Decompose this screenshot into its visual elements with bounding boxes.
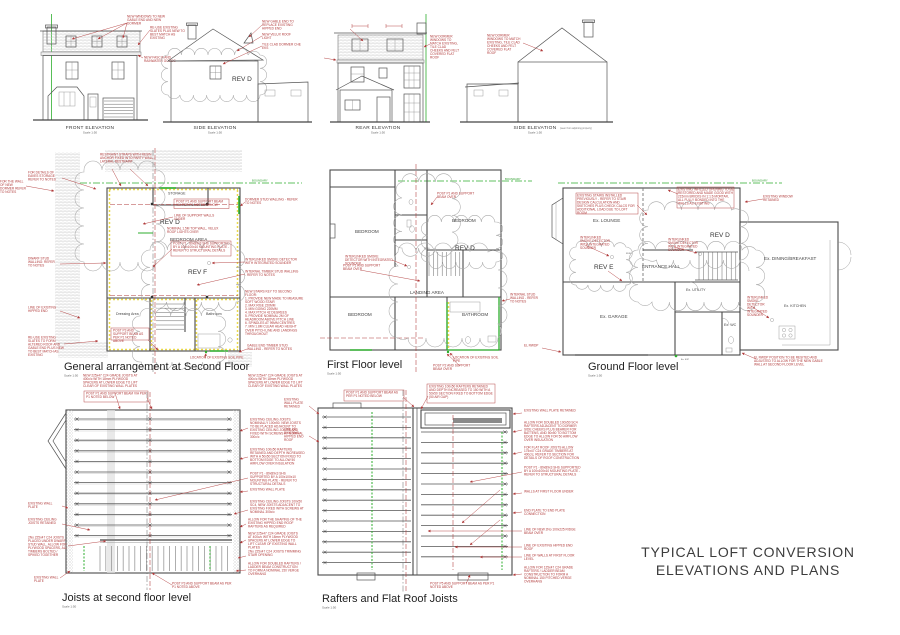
ff-note-intstud: INTERNAL STUD WALLING - REFER TO NOTES [510,293,570,317]
rear-scale: Scale 1:50 [371,131,386,135]
gf-bay-window [552,198,563,244]
front-elevation-scale: Scale 1:50 [83,131,98,135]
sf-note-intstud: INTERNAL TIMBER STUD WALLING - REFER TO … [245,270,355,286]
gf-note-window: EXISTING WINDOW RETAINED [763,195,853,205]
attached-garage [258,82,308,122]
jo-note-l2: EXISTING CEILING JOISTS RETAINED [28,518,96,538]
ff-note-soil: LOCATION OF EXISTING SOIL PIPE [453,356,549,366]
rear-elevation: REAR ELEVATION Scale 1:50 NEW DORMER WIN… [324,14,490,135]
sf-bathroom-label: Bathroom [206,312,222,316]
ff-bed3-label: BEDROOM [348,312,372,317]
sf-bath [198,334,220,348]
sf-note-post3box: POST P3 AND SUPPORT BEAM AS PER P1 NOTED… [113,329,183,353]
sheet-title: TYPICAL LOFT CONVERSION ELEVATIONS AND P… [641,544,855,578]
sf-note-restraint: RESTRAINT STRAPS WITH RESIN ANCHOR FIXED… [100,153,220,185]
rev-d-label: REV D [232,76,252,83]
french-door [838,242,851,255]
ra-title: Rafters and Flat Roof Joists [322,593,458,605]
gf-hall-label: ENTRANCE HALL [642,264,680,269]
gf-dining-label: Ex. DINING/BREAKFAST [764,256,817,261]
front-elevation: FRONT ELEVATION Scale 1:50 NEW WINDOWS T… [33,14,222,135]
garage-door [103,98,134,120]
gf-scale: Scale 1:50 [588,374,603,378]
ra-note-rr9: LINE OF WALLS AT FIRST FLOOR LEVEL [524,554,634,566]
drawing-sheet: FRONT ELEVATION Scale 1:50 NEW WINDOWS T… [0,0,900,635]
ra-note-rr7: LINE OF NEW 2No 100x225 RIDGE BEAM OVER [524,528,634,540]
jo-note-br4: ALLOW FOR DOUBLED RAFTERS / LADDER BEAM … [248,562,356,592]
ra-note-rr10: ALLOW FOR 125x47 C24 GRADE RAFTERS / LAD… [524,566,638,600]
gf-note-smoke3: INTERLINKED SMOKE DETECTOR WITH INTEGRAT… [747,296,799,324]
sf-revf-label: REV F [188,269,207,276]
front-note-2: RE-USE EXISTING SLATES PLUS NEW TO BEST … [150,26,222,44]
gf-garage-label: Ex. GARAGE [600,314,628,319]
gf-title: Ground Floor level [588,361,679,373]
chimney-breast [330,224,335,238]
ground-floor-plan: BOUNDARY Ex. LOUNGE REV D REV E ENTRANCE… [524,179,900,378]
svp-marker [675,355,678,358]
sf-dressing-label: Dressing Area [116,312,139,316]
side-b-scale: Scale 1:50 [528,131,543,135]
ff-revd-label: REV D [455,245,475,252]
sf-note-supwalls: LINE OF SUPPORT WALLS UNDER [174,214,274,224]
soil-pipe-marker [205,351,207,353]
ff-boundary-label: BOUNDARY [505,177,521,181]
ra-note-rr6: END PLATE TO END PLATE CONNECTION [524,509,634,521]
ra-note-left2: LINE OF EXISTING HIPPED END ROOF [284,428,332,456]
sf-note-velux: NOMINAL 1.5M TOP WALL, VELUX ROOF LIGHTS… [167,227,279,243]
jo-title: Joists at second floor level [62,592,191,604]
hob [779,326,795,339]
jo-note-l1: EXISTING WALL PLATE [28,502,96,514]
sf-boundary-label: BOUNDARY [252,179,268,183]
gf-note-rwdp-short: EL RWDP [524,344,560,354]
sf-storage-label: STORAGE [168,192,186,196]
sf-note-hipped: LINE OF EXISTING HIPPED END [28,306,92,322]
ff-landing-label: LANDING AREA [410,290,445,295]
ff-note-post2: POST P2 AND SUPPORT BEAM OVER [433,364,517,380]
sf-note-dwarf: DWARF STUD WALLING: REFER TO NOTES [28,257,92,281]
ff-bed2-label: BEDROOM [452,218,476,223]
ff-bath [450,302,480,312]
sheet-title-line1: TYPICAL LOFT CONVERSION [641,544,855,560]
front-note-3: NEW FASCIA AND RAINWATER GOODS [144,56,208,68]
gf-boundary-label: BOUNDARY [752,179,768,183]
ff-note-post1a: POST P1 AND SUPPORT BEAM OVER [437,192,521,208]
side-b-sublabel: (seen from adjoining property) [560,127,592,130]
rear-note-1: NEW DORMER WINDOWS TO MATCH EXISTING, TI… [430,35,490,75]
gf-note-smoke1: INTERLINKED SMOKE DETECTOR WITH INTEGRAT… [580,236,640,262]
gf-utility-label: Ex. UTILITY [686,288,706,292]
sf-title: General arrangement at Second Floor [64,361,250,373]
french-door [838,257,851,270]
sf-stairs [156,304,184,329]
side-a-scale: Scale 1:50 [208,131,223,135]
ra-note-rr4: POST P1 - 89x89x3 SHS SUPPORTED BY A 100… [524,466,642,492]
ff-bathroom-label: BATHROOM [462,312,488,317]
sheet-title-line2: ELEVATIONS AND PLANS [656,562,840,578]
jo-scale: Scale 1:50 [62,605,77,609]
sf-note-dormer: DORMER STUD WALLING - REFER TO NOTES [245,198,355,214]
soil-pipe-marker [447,351,449,353]
gf-reve-label: REV E [594,264,614,271]
sf-scale: Scale 1:50 [64,374,79,378]
jo-note-new-left: NEW 225x47 C24 GRADE JOISTS AT 400c/c WI… [83,374,203,406]
ra-note-rr1: EXISTING WALL PLATE RETAINED [524,409,636,421]
gf-note-infill: EXISTING INFILLED OPENING TO BE RESTORED… [678,188,790,228]
gf-wc-label: Ex. WC [724,323,737,327]
gf-note-smoke2: INTERLINKED SMOKE DETECTOR WITH INTEGRAT… [668,238,728,264]
side-b-note-1: NEW DORMER WINDOWS TO MATCH EXISTING, TI… [487,34,555,74]
gf-svp-label: Ex. SVP [681,359,690,361]
side-a-note-3: TILE CLAD DORMER CHE EKS [262,43,340,57]
ra-scale: Scale 1:50 [322,606,337,610]
drawing-canvas: FRONT ELEVATION Scale 1:50 NEW WINDOWS T… [0,0,900,635]
ff-bed1-label: BEDROOM [355,229,379,234]
gf-note-rwdp: EL RWDP POSITION TO BE RESITED AND ADJUS… [754,356,900,374]
second-floor-plan: BOUNDARY STORAGE REV D BEDROOM AREA REV … [0,148,363,378]
ra-note-rr5: WALLS AT FIRST FLOOR UNDER [524,490,634,502]
ff-note-post1b: POST P1 AND SUPPORT BEAM OVER [343,264,427,280]
ff-title: First Floor level [327,359,402,371]
hip-outline [48,413,66,469]
sf-note-left1: FOR THE WALL OF NEW DORMER REFER TO NOTE… [0,180,52,208]
ff-fd30-label: FD30 [424,248,430,250]
jo-note-l4: EXISTING WALL PLATE [34,576,102,588]
ra-note-left1: EXISTING WALL PLATE RETAINED [284,398,332,426]
